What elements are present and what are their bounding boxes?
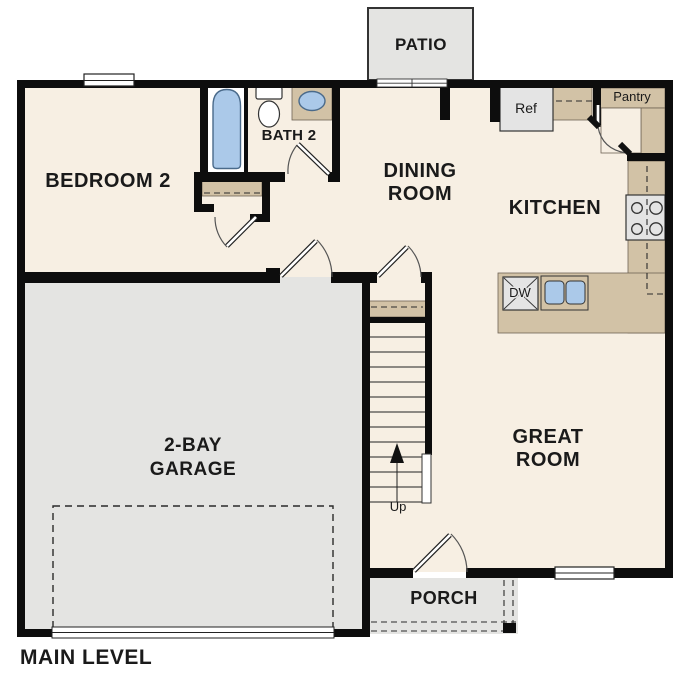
bath2-label: BATH 2 — [262, 127, 317, 144]
wall — [194, 204, 214, 212]
kitchen-upper-cabinet — [553, 84, 592, 120]
wall — [17, 272, 280, 283]
bathtub — [213, 90, 241, 169]
bathroom-sink — [299, 92, 325, 111]
garage-stair-wall — [362, 272, 370, 637]
refrigerator-label: Ref — [515, 100, 537, 116]
wall — [466, 568, 558, 578]
kitchen-sink-basin-right — [566, 281, 585, 304]
wall — [17, 80, 25, 637]
wall — [612, 568, 673, 578]
stair-closet-shelf — [369, 301, 426, 317]
bedroom2-label: BEDROOM 2 — [45, 170, 171, 192]
wall — [627, 153, 673, 161]
dishwasher-label: DW — [509, 285, 531, 300]
pantry-label: Pantry — [613, 89, 651, 104]
toilet-tank — [256, 87, 282, 99]
garage-label: GARAGE — [150, 459, 236, 480]
garage-label: 2-BAY — [164, 435, 222, 456]
great-room-label: ROOM — [516, 449, 580, 471]
stair-wall — [425, 272, 432, 455]
bedroom-closet-shelf — [202, 180, 262, 196]
patio-label: PATIO — [395, 35, 447, 54]
door-hinge-stub — [266, 268, 280, 283]
wall — [332, 84, 340, 182]
stairs-up-label: Up — [390, 499, 407, 514]
kitchen-sink-basin-left — [545, 281, 564, 304]
wall — [331, 272, 366, 283]
dining-room-label: DINING — [384, 160, 457, 182]
stair-closet-back-wall — [368, 317, 430, 323]
porch-label: PORCH — [410, 588, 478, 608]
dining-room-label: ROOM — [388, 183, 452, 205]
stove — [626, 195, 665, 240]
wall — [200, 84, 208, 182]
tub-partition-wall — [244, 84, 248, 173]
plan-title: MAIN LEVEL — [20, 646, 152, 669]
pantry-shelf-right — [641, 108, 665, 154]
floor-plan-svg: BEDROOM 2 BATH 2 DINING ROOM KITCHEN GRE… — [0, 0, 687, 687]
toilet-bowl — [259, 101, 280, 127]
kitchen-label: KITCHEN — [509, 197, 601, 219]
stair-railing — [422, 454, 431, 503]
porch-post — [503, 623, 516, 633]
great-room-label: GREAT — [512, 426, 583, 448]
floor-plan-page: BEDROOM 2 BATH 2 DINING ROOM KITCHEN GRE… — [0, 0, 687, 687]
wall — [194, 172, 285, 182]
wall — [490, 80, 500, 122]
